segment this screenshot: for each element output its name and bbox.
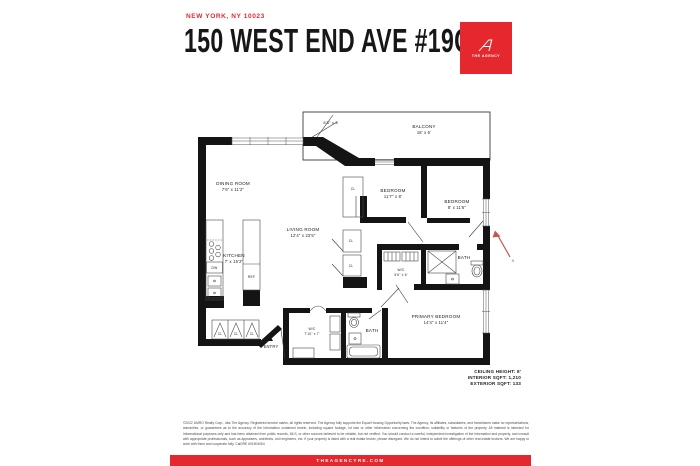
closet2-label: CL (234, 332, 239, 336)
unit-stats: CEILING HEIGHT: 8' INTERIOR SQFT: 1,210 … (373, 369, 521, 387)
legal-disclaimer: ©2022 UMRO Realty Corp., dba The Agency.… (183, 421, 529, 448)
agency-logo-text: THE AGENCY (472, 54, 500, 58)
agency-a-icon (478, 39, 495, 52)
primary-bedroom-label: PRIMARY BEDROOM (412, 314, 461, 319)
balcony-label: BALCONY (412, 124, 435, 129)
bedroom3-label: BEDROOM (444, 199, 469, 204)
dishwasher-label: DW (212, 266, 219, 270)
wic-small-dims: 5'6" x 6' (394, 273, 407, 277)
terrace-dim-label: 8'3" x 3' (323, 120, 338, 125)
footer-bar: THEAGENCYRE.COM (170, 455, 531, 466)
living-room-dims: 12'4" x 23'5" (290, 233, 315, 238)
north-arrow-icon (493, 231, 511, 258)
dining-room-label: DINING ROOM (216, 181, 250, 186)
entry-label: ENTRY (264, 344, 279, 349)
bedroom3-dims: 8' x 11'6" (448, 205, 466, 210)
wic-large-label: W/C (308, 327, 315, 331)
agency-website: THEAGENCYRE.COM (316, 458, 384, 463)
bedroom2-label: BEDROOM (380, 188, 405, 193)
agency-logo: THE AGENCY (460, 22, 512, 74)
listing-location: NEW YORK, NY 10023 (186, 13, 265, 20)
closet5-label: CL (349, 239, 354, 243)
bedroom2-dims: 11'7" x 8' (384, 194, 402, 199)
dining-room-dims: 7'6" x 11'2" (222, 187, 245, 192)
bath-upper-label: BATH (458, 255, 471, 260)
bath-fixtures (347, 251, 483, 358)
balcony-dims: 18' x 6' (417, 130, 431, 135)
bath-lower-label: BATH (366, 328, 379, 333)
north-label: N (512, 259, 515, 263)
exterior-sqft: EXTERIOR SQFT: 133 (373, 381, 521, 387)
refrigerator-label: REF (248, 275, 255, 279)
floorplan: 8'3" x 3' BALCONY 18' x 6' DINING ROOM 7… (188, 92, 536, 392)
kitchen-label: KITCHEN (223, 253, 245, 258)
living-room-label: LIVING ROOM (287, 227, 320, 232)
wic-large-dims: 7'10" x 7' (304, 332, 319, 336)
wic-small-label: W/C (397, 268, 404, 272)
closet1-label: CL (218, 332, 223, 336)
closet3-label: CL (250, 332, 255, 336)
closet6-label: CL (349, 264, 354, 268)
kitchen-dims: 7' x 15'2" (225, 259, 244, 264)
primary-bedroom-dims: 14'4" x 11'4" (424, 320, 449, 325)
closet4-label: CL (351, 187, 356, 191)
